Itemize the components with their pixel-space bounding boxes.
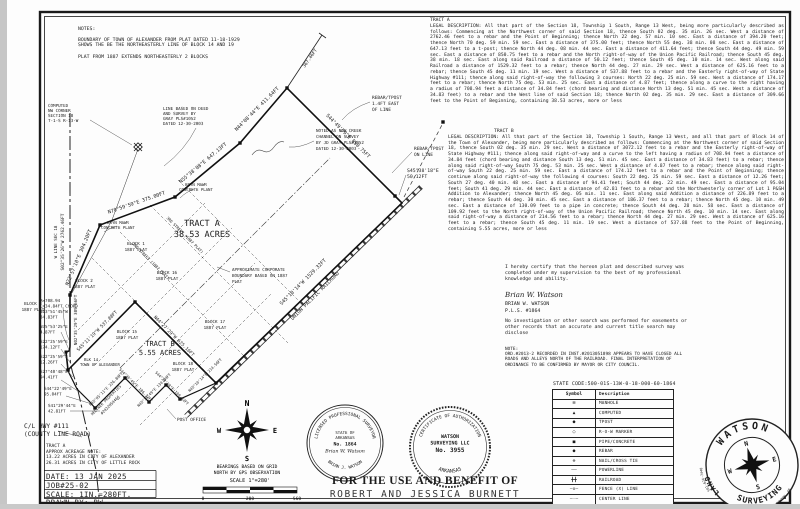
compass-n: N [245,399,250,408]
svg-text:ARKANSAS: ARKANSAS [438,466,463,474]
svg-text:BLOCK 2: BLOCK 2 [75,278,93,283]
svg-text:(COUNTY LINE ROAD): (COUNTY LINE ROAD) [24,431,91,438]
client-names: ROBERT AND JESSICA BURNETT [310,489,540,500]
ne-monument-tie [404,123,443,197]
svg-text:APPROXIMATE CORPORATE: APPROXIMATE CORPORATE [232,267,285,272]
svg-text:ON LINE: ON LINE [414,152,433,158]
ordinance-note: ORD.#2013-2 RECORDED IN INST.#2013051898… [505,352,683,368]
legend-header: Symbol Description [553,390,673,399]
state-code: STATE CODE:500-01S-13W-0-18-000-60-1864 [553,381,676,387]
svg-text:174.12FT: 174.12FT [40,345,61,350]
compass-s: S [245,455,249,463]
svg-text:NORTH BY GPS OBSERVATION: NORTH BY GPS OBSERVATION [214,470,281,476]
row-marker-icon: ○ [553,428,596,437]
svg-text:BLOCK 3: BLOCK 3 [24,301,42,306]
svg-text:N44°08'44"E 411.64FT: N44°08'44"E 411.64FT [234,86,281,133]
title-search-disclaimer: No investigation or other search was per… [505,319,697,337]
svg-text:N75°53'25"E: N75°53'25"E [40,324,68,329]
legend-row: ●REBAR [553,446,673,456]
svg-text:42.81FT: 42.81FT [48,409,66,414]
svg-text:L=34.84FT CHORD: L=34.84FT CHORD [40,304,78,309]
svg-text:N02°35'29"E 309.66FT: N02°35'29"E 309.66FT [73,294,78,345]
svg-text:BRIAN J. WATSON: BRIAN J. WATSON [327,459,363,470]
svg-text:CHANNEL ON SURVEY: CHANNEL ON SURVEY [316,134,359,139]
svg-text:SCALE 1"=280': SCALE 1"=280' [230,478,271,484]
notes-body: BOUNDARY OF TOWN OF ALEXANDER FROM PLAT … [78,38,348,60]
svg-text:S02°35'26"W 2762.46FT: S02°35'26"W 2762.46FT [60,213,66,270]
svg-text:1.4FT EAST: 1.4FT EAST [372,101,399,107]
pls-seal: LICENSED PROFESSIONAL SURVEYOR BRIAN J. … [307,405,383,481]
svg-text:TRACT B: TRACT B [145,340,175,348]
surveyor-signature: Brian W. Watson [505,291,563,299]
compass-w: W [217,427,222,435]
svg-text:Brian W. Watson: Brian W. Watson [324,449,365,455]
tract-b-text: LEGAL DESCRIPTION: All that part of the … [448,135,784,232]
svg-text:WATSON: WATSON [441,434,459,440]
svg-text:BLOCK 15: BLOCK 15 [117,329,138,334]
job-number-field: JOB#25-02 [46,481,89,490]
svg-text:50.12FT: 50.12FT [407,174,427,180]
legend-row: ▲COMPUTED [553,408,673,418]
svg-text:BLOCK 17: BLOCK 17 [205,319,226,324]
notes-block: NOTES: BOUNDARY OF TOWN OF ALEXANDER FRO… [78,21,348,66]
svg-text:1887 PLAT: 1887 PLAT [204,325,227,330]
svg-text:BOUNDARY BASED ON 1887: BOUNDARY BASED ON 1887 [232,273,288,278]
svg-text:S45°38'18"E: S45°38'18"E [407,168,439,174]
notes-title: NOTES: [78,27,348,33]
legal-description-tract-a: TRACT A LEGAL DESCRIPTION: All that part… [430,18,784,104]
svg-text:BEARINGS BASED ON GRID: BEARINGS BASED ON GRID [217,464,278,470]
surveyor-license: P.L.S. #1864 [505,308,540,314]
svg-text:UNION PACIFIC RAILROAD: UNION PACIFIC RAILROAD [290,271,341,322]
svg-text:1887 PLAT: 1887 PLAT [116,335,139,340]
surveyor-name: BRIAN W. WATSON [505,301,549,307]
scan-edge-left [0,0,7,509]
svg-text:REBAR/TPOST: REBAR/TPOST [414,146,444,152]
svg-text:TRACT A: TRACT A [184,219,220,229]
svg-text:S27°40'48"E: S27°40'48"E [40,369,68,374]
computed-corner-marker [134,143,142,151]
scale-bar: 0 280 560 BEARINGS BASED ON GRID NORTH B… [202,464,302,502]
manhole-icon: ⊠ [553,400,596,409]
legend-row: ○R-O-W MARKER [553,427,673,437]
svg-text:NOTED AS NEW CREEK: NOTED AS NEW CREEK [316,128,362,133]
svg-text:REBAR/TPOST: REBAR/TPOST [372,95,402,101]
svg-text:0: 0 [202,496,205,502]
svg-text:1887 PLAT: 1887 PLAT [73,284,96,289]
tpost-icon: ● [553,419,596,428]
plat-sheet: TRACT A 38.53 ACRES TRACT B 5.55 ACRES S… [0,0,800,509]
svg-text:OF LINE: OF LINE [372,107,391,113]
svg-text:T-1-S R-13-W: T-1-S R-13-W [48,118,79,123]
creek-channel [252,142,284,155]
svg-text:94.41FT: 94.41FT [40,375,58,380]
svg-text:ARKANSAS: ARKANSAS [335,435,355,440]
svg-text:S45°11'19"W 537.88FT: S45°11'19"W 537.88FT [76,309,120,353]
svg-text:BLOCK 18: BLOCK 18 [173,361,194,366]
legend-row: ●TPOST [553,418,673,428]
certification-statement: I hereby certify that the hereon plat an… [505,265,697,283]
svg-text:S44°22'49"E: S44°22'49"E [44,386,72,391]
legend-row: ■PIPE/CONCRETE [553,437,673,447]
legend-row: ⊕NAIL/CROSS TIE [553,456,673,466]
compass-e: E [273,427,277,435]
svg-text:No. 3955: No. 3955 [436,447,465,454]
railroad [185,186,423,418]
legend-row: ——POWERLINE [553,465,673,475]
drawing-labels: TRACT A 38.53 ACRES TRACT B 5.55 ACRES S… [22,48,444,438]
svg-text:C/L HWY #111: C/L HWY #111 [24,423,69,430]
svg-text:34.83FT: 34.83FT [40,315,58,320]
acreage-note: TRACT A APPROX ACREAGE NOTE: 13.22 ACRES… [46,444,140,466]
svg-text:S41°29'44"E: S41°29'44"E [48,403,76,408]
legend-table: Symbol Description ⊠MANHOLE ▲COMPUTED ●T… [552,389,674,509]
svg-text:No. 1864: No. 1864 [333,442,356,448]
powerline-icon: —— [553,466,596,475]
svg-text:280: 280 [246,496,254,502]
svg-text:4.87FT: 4.87FT [40,330,56,335]
date-field: DATE: 13 JAN 2025 [46,472,127,481]
svg-text:DATED 12-30-2003: DATED 12-30-2003 [316,146,357,151]
svg-text:PLAT: PLAT [232,279,243,284]
svg-text:N55°38'08"E 647.13FT: N55°38'08"E 647.13FT [178,142,228,185]
svg-text:560: 560 [293,496,301,502]
svg-text:S22°25'59"E: S22°25'59"E [40,354,68,359]
svg-text:S22°25'59"E: S22°25'59"E [40,339,68,344]
svg-text:1887 PLAT: 1887 PLAT [172,367,195,372]
compass-rose: N S W E [217,399,277,463]
svg-text:SURVEYING LLC: SURVEYING LLC [430,441,469,447]
svg-text:95.04FT: 95.04FT [44,392,62,397]
svg-text:S44°28'58"E 109.92FT: S44°28'58"E 109.92FT [154,370,190,406]
tract-a-text: LEGAL DESCRIPTION: All that part of the … [430,24,784,104]
legend-row: ⊠MANHOLE [553,399,673,409]
svg-text:BY JD GRAY PLS#1052: BY JD GRAY PLS#1052 [316,140,364,145]
pipe-concrete-icon: ■ [553,438,596,447]
surveyor-logo-stamp: WATSON SURVEYING LAND 501-626-7440 10709… [689,409,800,509]
svg-text:CONCRETE PLANT: CONCRETE PLANT [101,225,135,230]
legend-header-symbol: Symbol [553,390,596,399]
legend-row: ╋╋RAILROAD [553,475,673,485]
railroad-icon: ╋╋ [553,476,596,485]
svg-text:POST OFFICE: POST OFFICE [177,417,206,423]
legal-description-tract-b: TRACT B LEGAL DESCRIPTION: All that part… [448,129,784,233]
svg-text:5.55 ACRES: 5.55 ACRES [139,349,181,357]
legend-header-description: Description [596,392,673,397]
center-line-icon: —·— [553,495,596,504]
legend-row: —·—CENTER LINE [553,494,673,504]
svg-text:1887 PLAT: 1887 PLAT [22,307,45,312]
computed-icon: ▲ [553,409,596,418]
benefit-title: FOR THE USE AND BENEFIT OF [310,475,540,487]
svg-text:12.26FT: 12.26FT [40,360,58,365]
svg-text:CONCRETE PLANT: CONCRETE PLANT [179,187,213,192]
rebar-icon: ● [553,447,596,456]
corner-markers [65,86,445,409]
svg-text:DATED 12-30-2003: DATED 12-30-2003 [163,121,204,126]
svg-text:TOWN OF ALEXANDER: TOWN OF ALEXANDER [80,362,120,367]
svg-text:W LINE SEC 18: W LINE SEC 18 [53,225,58,258]
svg-text:2ND STREET (1887 PLAT): 2ND STREET (1887 PLAT) [132,241,171,280]
legend-row: —x—FENCE (X) LINE [553,484,673,494]
nail-cross-tie-icon: ⊕ [553,457,596,466]
svg-text:R=708.94: R=708.94 [40,298,61,303]
fence-line-icon: —x— [553,485,596,494]
scan-edge-bottom [0,504,800,509]
